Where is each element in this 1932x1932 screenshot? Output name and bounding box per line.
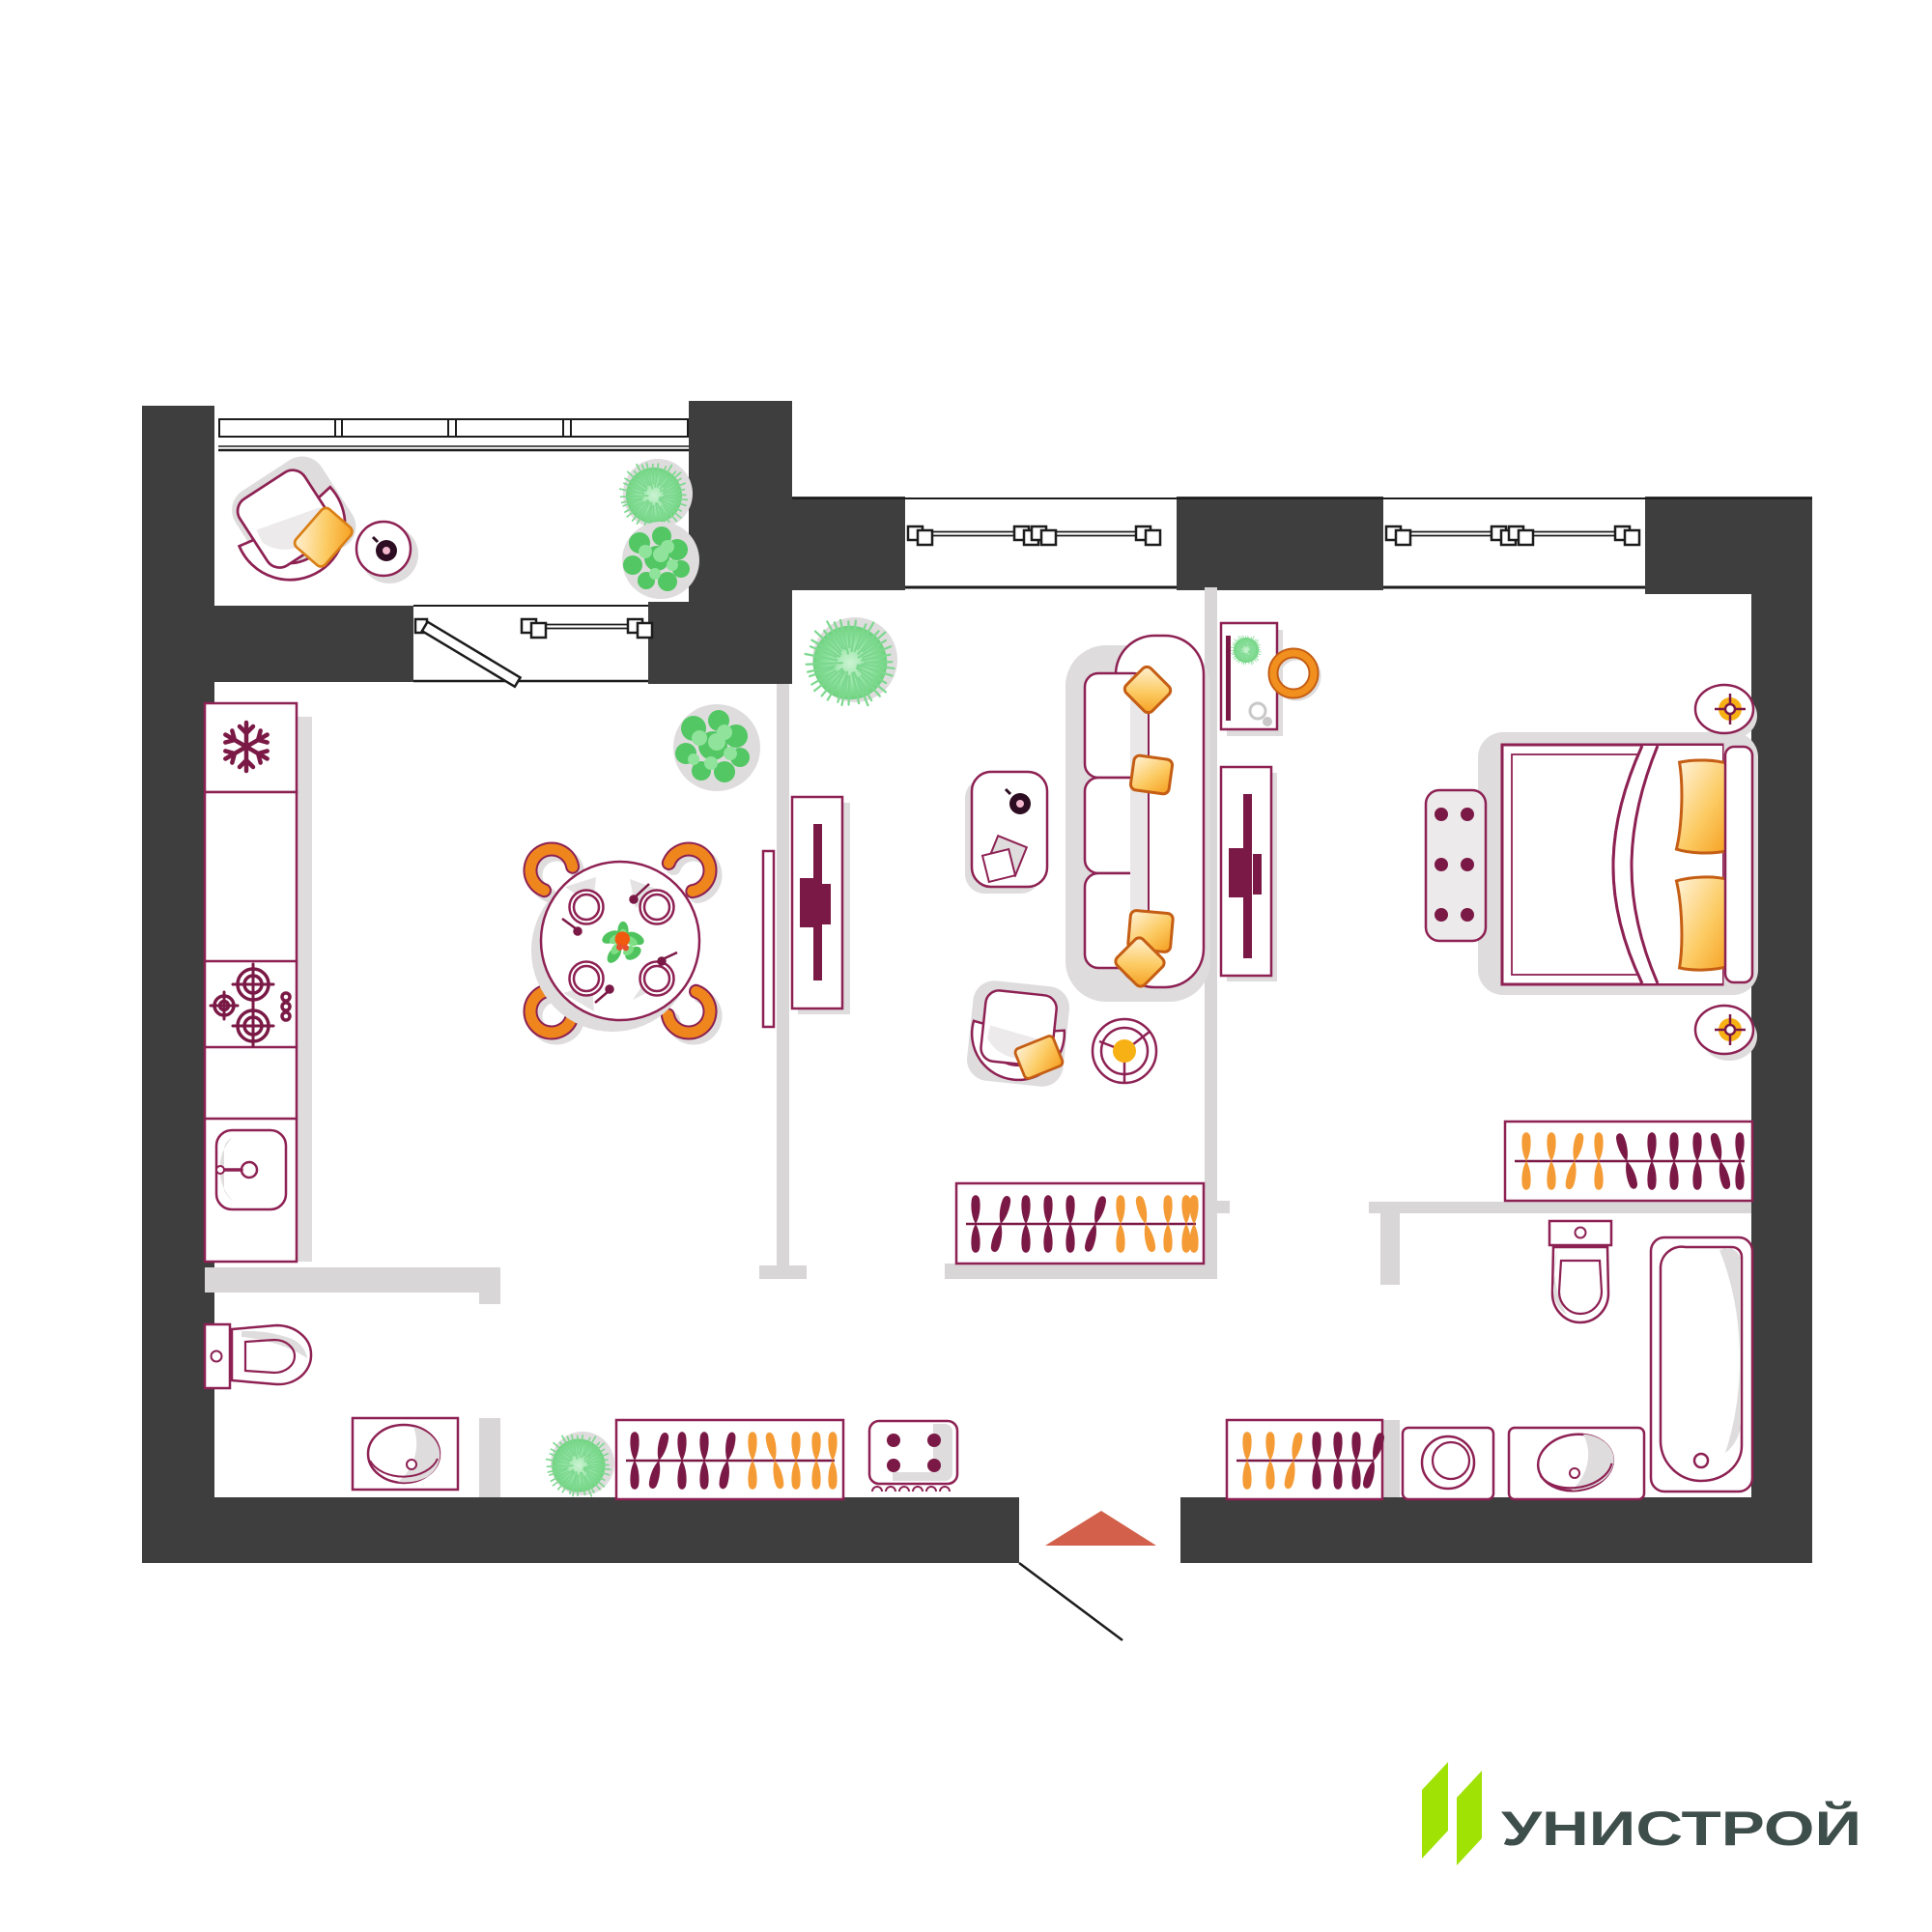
svg-text:УНИСТРОЙ: УНИСТРОЙ — [1501, 1801, 1861, 1856]
